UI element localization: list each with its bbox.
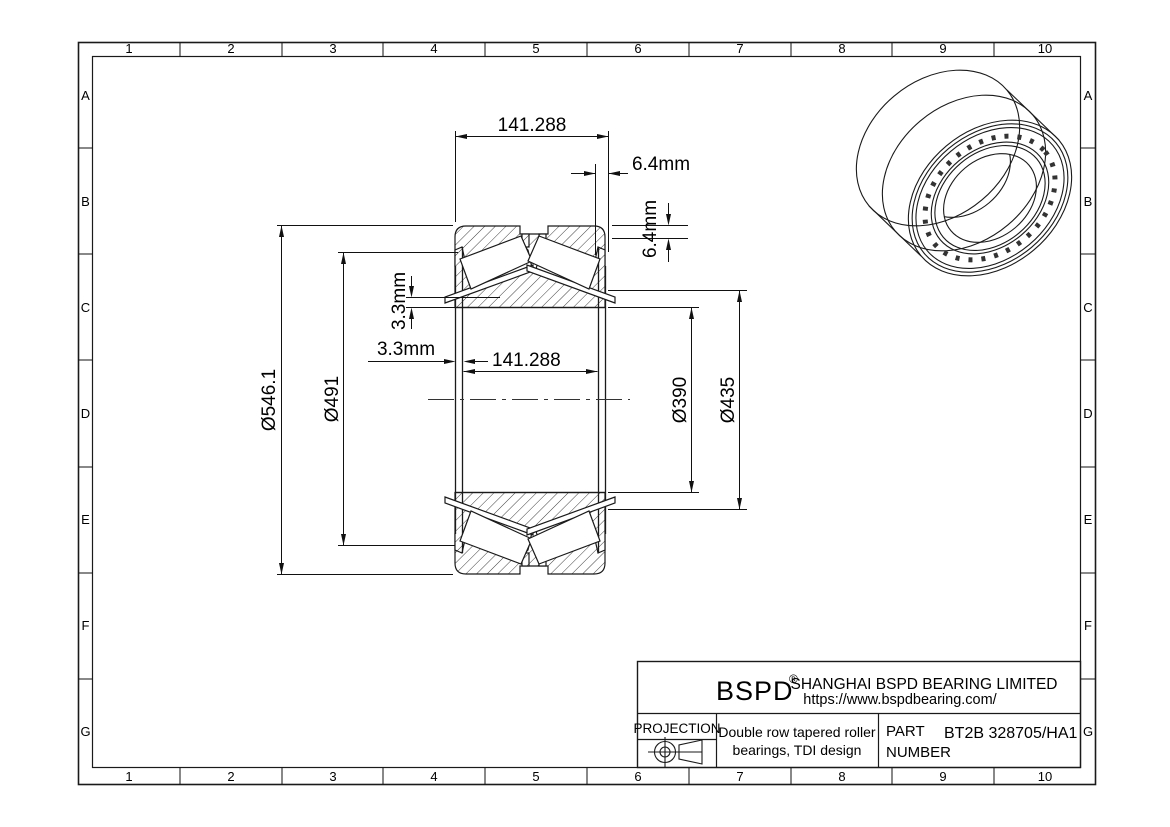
grid-col-label: 2 — [227, 41, 234, 56]
company-logo: BSPD — [716, 676, 794, 706]
grid-col-label: 1 — [125, 41, 132, 56]
part-number-label-line2: NUMBER — [886, 744, 951, 761]
grid-col-label: 8 — [838, 769, 845, 784]
part-number-label-line1: PART — [886, 723, 925, 740]
grid-row-label: E — [81, 512, 90, 527]
bearing-isometric-view — [825, 38, 1102, 308]
sheet-border: 1 2 3 4 5 6 7 8 9 10 1 2 3 4 5 6 7 8 9 1… — [79, 41, 1096, 785]
company-name: SHANGHAI BSPD BEARING LIMITED — [791, 676, 1058, 693]
part-number-value: BT2B 328705/HA1 — [944, 725, 1078, 742]
grid-row-label: B — [1084, 194, 1093, 209]
grid-col-label: 6 — [634, 769, 641, 784]
grid-col-label: 10 — [1038, 769, 1052, 784]
grid-col-label: 7 — [736, 769, 743, 784]
title-block: BSPD ® SHANGHAI BSPD BEARING LIMITED htt… — [633, 662, 1080, 768]
grid-col-label: 5 — [532, 41, 539, 56]
dimension-label: 3.3mm — [389, 272, 410, 330]
dimension-label: Ø390 — [670, 377, 691, 423]
grid-row-label: D — [1083, 406, 1092, 421]
grid-row-label: F — [1084, 618, 1092, 633]
grid-row-label: G — [80, 724, 90, 739]
dimension-label: Ø491 — [322, 376, 343, 422]
grid-row-label: B — [81, 194, 90, 209]
dimension-label: Ø435 — [718, 377, 739, 423]
drawing-canvas: 1 2 3 4 5 6 7 8 9 10 1 2 3 4 5 6 7 8 9 1… — [0, 0, 1170, 827]
grid-col-label: 6 — [634, 41, 641, 56]
grid-row-label: C — [1083, 300, 1092, 315]
grid-labels: 1 2 3 4 5 6 7 8 9 10 1 2 3 4 5 6 7 8 9 1… — [80, 41, 1093, 784]
grid-col-label: 4 — [430, 41, 437, 56]
part-description-line1: Double row tapered roller — [718, 724, 876, 740]
dimension-label: 3.3mm — [377, 339, 435, 360]
grid-col-label: 3 — [329, 769, 336, 784]
grid-col-label: 3 — [329, 41, 336, 56]
grid-row-label: A — [81, 88, 90, 103]
company-website: https://www.bspdbearing.com/ — [803, 692, 997, 708]
dimension-label: 141.288 — [498, 115, 567, 136]
first-angle-projection-icon — [648, 737, 702, 767]
part-description-line2: bearings, TDI design — [733, 742, 862, 758]
bearing-section-view — [428, 226, 630, 574]
grid-col-label: 8 — [838, 41, 845, 56]
grid-col-label: 5 — [532, 769, 539, 784]
grid-row-label: D — [81, 406, 90, 421]
grid-col-label: 10 — [1038, 41, 1052, 56]
grid-row-label: E — [1084, 512, 1093, 527]
grid-col-label: 9 — [939, 769, 946, 784]
grid-row-label: G — [1083, 724, 1093, 739]
dimension-label: 141.288 — [492, 350, 561, 371]
grid-row-label: C — [81, 300, 90, 315]
engineering-drawing-sheet: 1 2 3 4 5 6 7 8 9 10 1 2 3 4 5 6 7 8 9 1… — [0, 0, 1170, 827]
projection-label: PROJECTION — [633, 721, 720, 736]
dimension-label: 6.4mm — [632, 154, 690, 175]
grid-col-label: 2 — [227, 769, 234, 784]
grid-row-label: F — [82, 618, 90, 633]
grid-col-label: 9 — [939, 41, 946, 56]
grid-col-label: 7 — [736, 41, 743, 56]
grid-col-label: 4 — [430, 769, 437, 784]
dimension-label: 6.4mm — [640, 200, 661, 258]
grid-col-label: 1 — [125, 769, 132, 784]
dimension-label: Ø546.1 — [259, 369, 280, 431]
grid-row-label: A — [1084, 88, 1093, 103]
